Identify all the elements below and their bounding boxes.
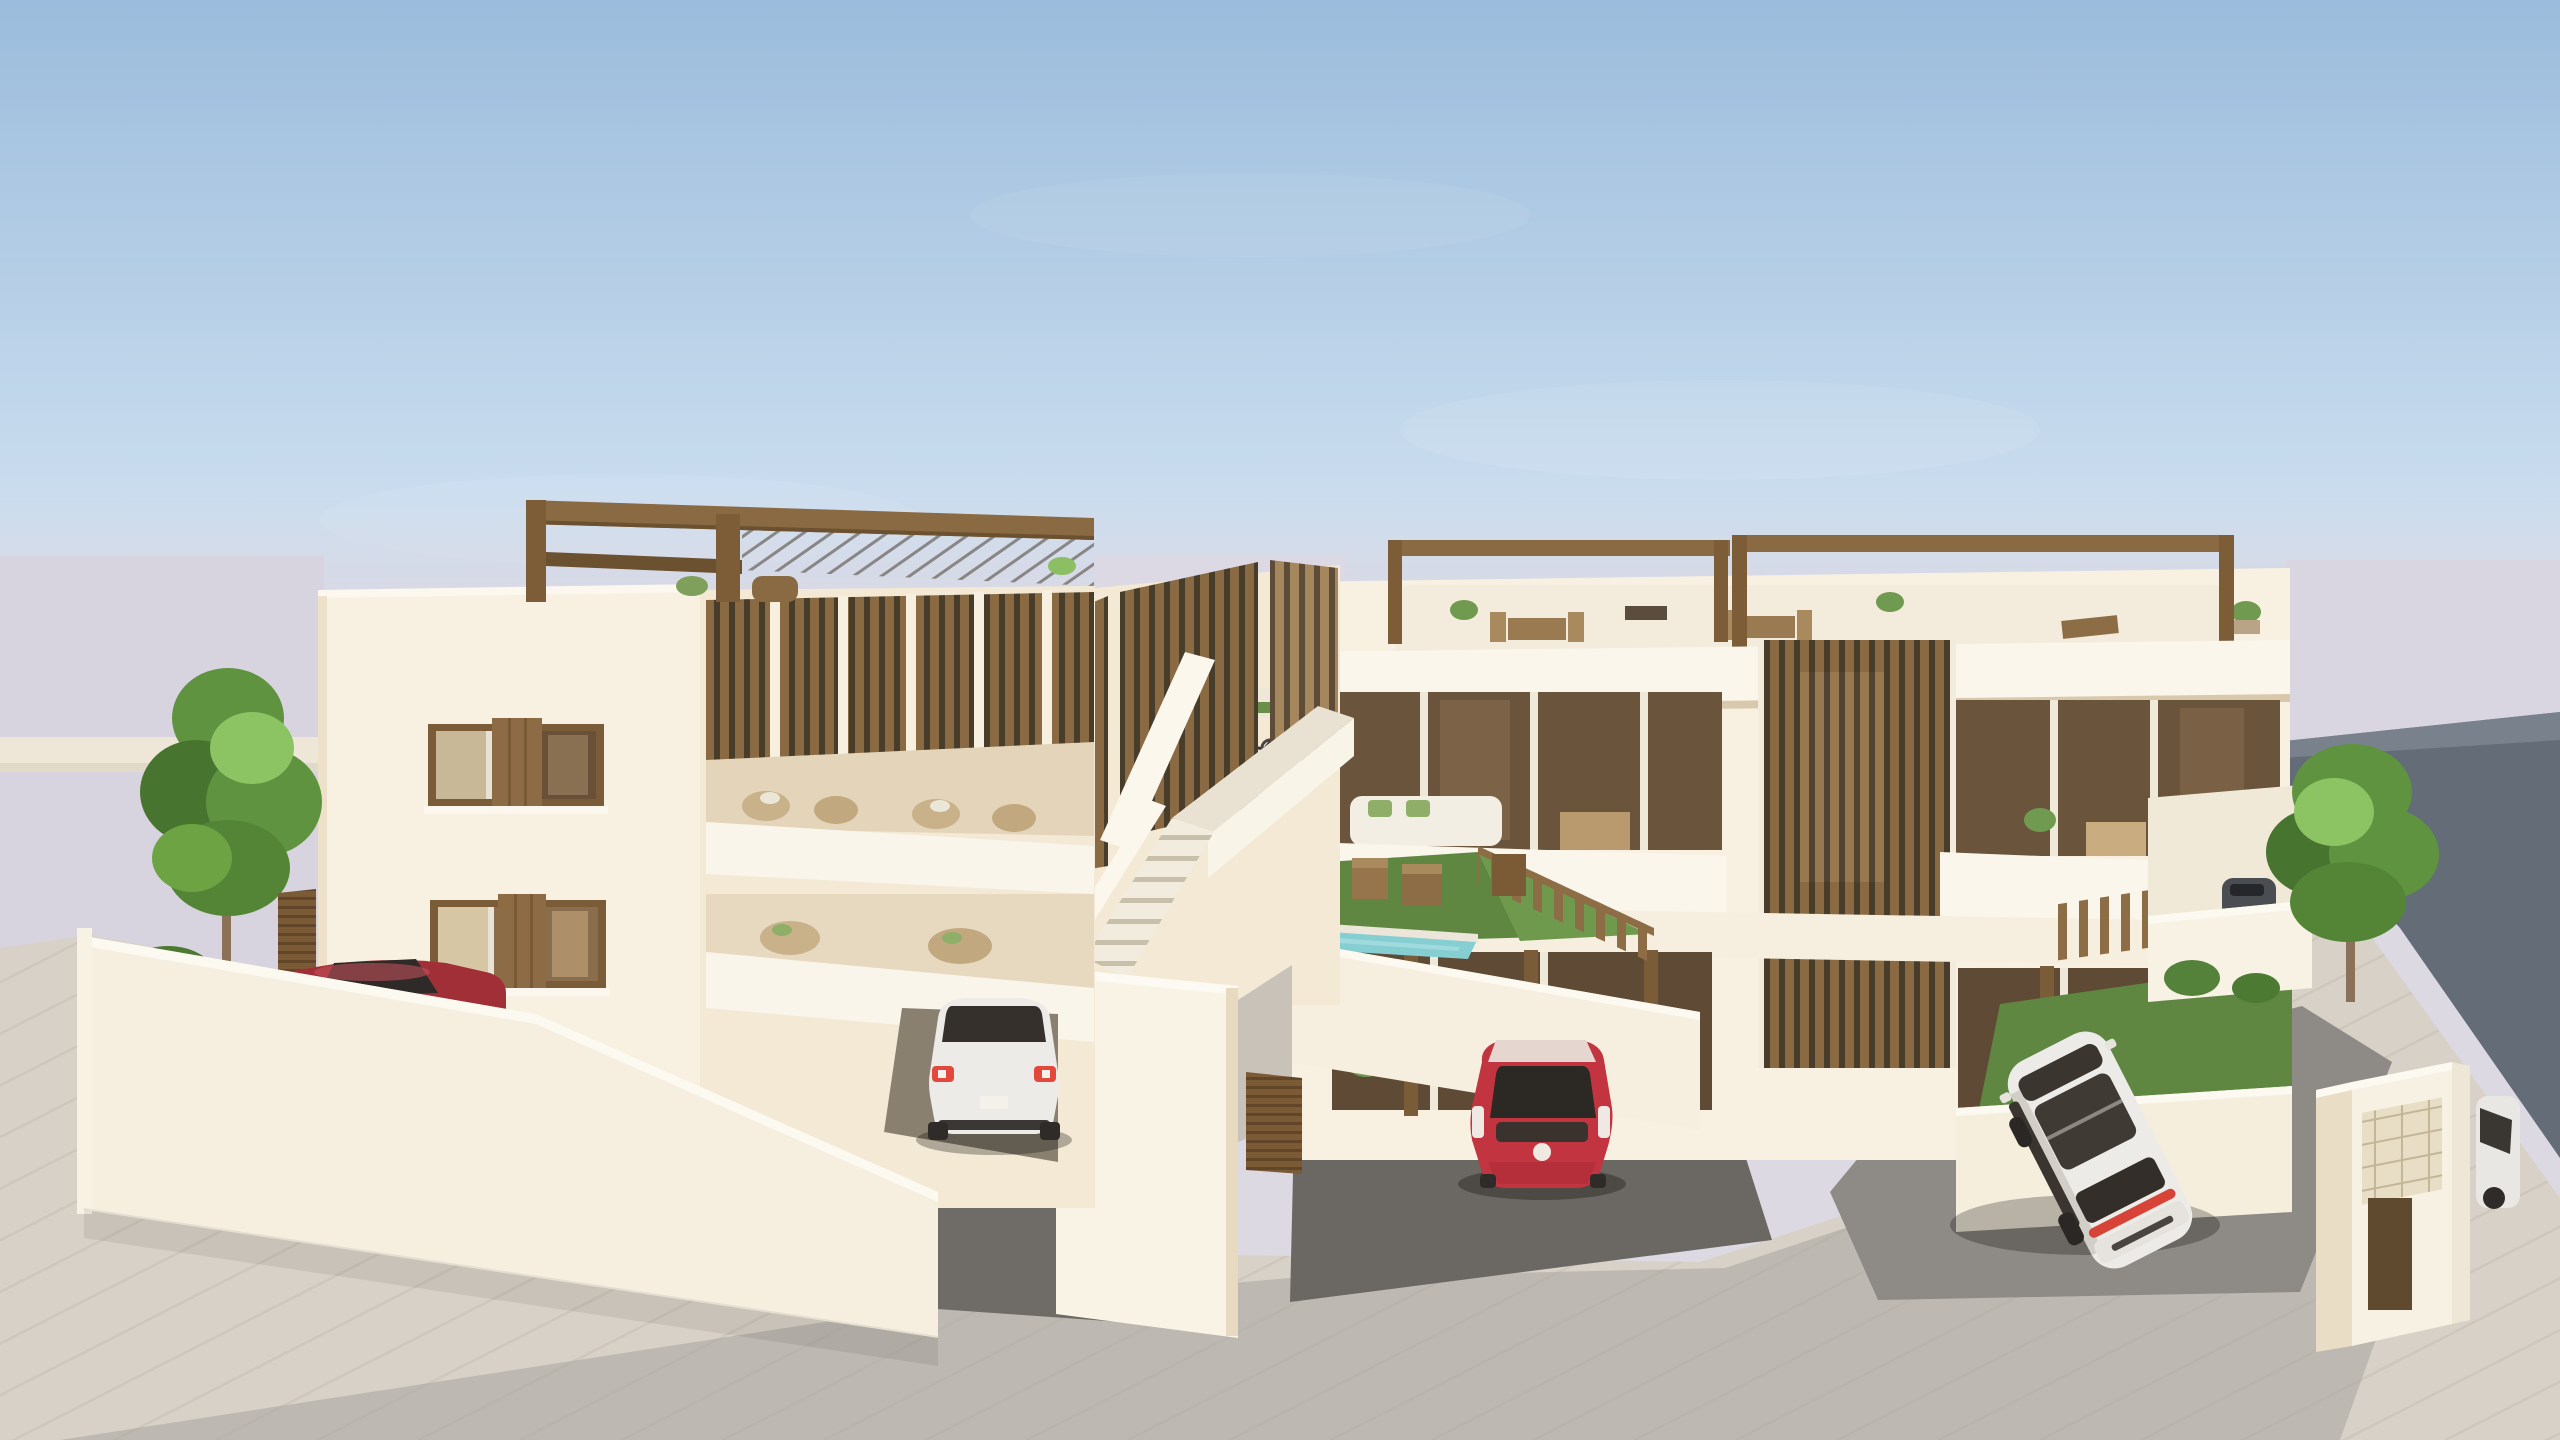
architectural-render [0,0,2560,1440]
flank-mullion [974,592,984,758]
roof-chair [1568,612,1584,642]
roof-palm [1048,557,1076,575]
roof-plant [1450,600,1478,620]
pergola-post [1732,535,1747,650]
window-mullion [1530,692,1538,850]
window-sill [424,806,608,814]
window-mullion [486,731,492,799]
window-pane-light [436,731,488,799]
pergola-post [2219,535,2234,650]
pergola-post [526,500,546,602]
louver-frame [1758,640,1764,1068]
sofa-cushion-green [942,932,962,944]
lounger [1402,872,1442,906]
pergola-post [1388,540,1402,644]
wicker-chair [814,796,858,824]
canopy [210,712,294,784]
shutter-grain [508,718,511,812]
render-viewport [0,0,2560,1440]
balcony-plant [2024,808,2056,832]
glass-reflection [552,911,588,977]
sedan-rear-glass [942,1006,1046,1042]
balcony-table [1560,812,1630,850]
roof-dining-table [1508,618,1566,640]
pergola-post [1714,540,1728,642]
white-car-front [2476,1096,2520,1209]
sedan-bumper-shade [938,1120,1050,1130]
pergola-beam [1388,540,1730,556]
glass-reflection [548,735,588,795]
shutter-grain [530,894,533,994]
roof-planter [2234,620,2260,634]
shrub [2164,960,2220,996]
sofa-cushion [1406,800,1430,817]
hatch-logo [1533,1143,1551,1161]
tree-trunk [2346,938,2355,1002]
hatch-wheel [1480,1174,1496,1188]
pergola-post [716,514,740,602]
cloud [1400,380,2040,480]
sofa-cushion [1368,800,1392,817]
garden-gate [278,889,316,980]
mailbox-door [2368,1198,2412,1310]
shutter-grain [524,718,527,812]
coupe-roof-highlight [314,963,430,981]
hatch-rear-glass [1490,1066,1596,1118]
hatch-taillight [1472,1106,1484,1138]
roof-plant [676,576,708,596]
hatch-bumper [1488,1162,1596,1184]
roof-chair [1490,612,1506,642]
white-sedan [916,998,1072,1155]
window-mullion [2050,700,2058,856]
red-hatchback [1458,1040,1626,1200]
canopy [152,824,232,892]
wood-shutter [492,718,542,812]
roof-vent [752,576,798,602]
wooden-louver-screen-right [1758,640,1956,1068]
cloud [970,173,1530,257]
canopy [2290,862,2406,942]
shrub [2232,973,2280,1003]
wall-end-post [77,928,92,1214]
window-mullion [1640,692,1648,850]
white-car-wheel [2483,1187,2505,1209]
roof-plant [1876,592,1904,612]
flank-mullion [1042,590,1052,748]
fence-gate [1492,854,1526,896]
wicker-chair [992,804,1036,832]
hatch-trunk-band [1496,1122,1588,1142]
hatch-taillight [1598,1106,1610,1138]
pergola-beam [1732,535,2234,552]
balcony-chairs [2086,822,2146,856]
sedan-wheel [928,1122,948,1140]
window-mullion [488,907,494,981]
louver-panel-light [1800,672,1884,882]
mailbox-return [2452,1062,2470,1324]
facade-window-upper [424,718,608,814]
mailbox-unit [2316,1062,2470,1352]
hatch-roof [1488,1040,1596,1062]
wicker-sofa [760,921,820,955]
flank-mullion [906,594,916,770]
cushion [930,800,950,812]
cushion [760,792,780,804]
dark-car-window [2230,884,2264,896]
garage-door [1246,1072,1302,1174]
stair-block-shade [1226,988,1238,1336]
wicker-sofa [928,928,992,964]
lounger [1352,866,1388,899]
roof-plant [2231,601,2261,623]
mailbox-side [2316,1082,2352,1352]
roof-chair [1797,610,1812,640]
sedan-plate [980,1096,1008,1109]
sofa-cushion-green [772,924,792,936]
taillight-inner [1042,1070,1050,1078]
lounger-back [1352,858,1388,868]
shutter-grain [514,894,517,994]
taillight-inner [938,1070,946,1078]
lounger-back [1402,864,1442,874]
wood-shutter [498,894,546,994]
sedan-wheel [1040,1122,1060,1140]
roof-cushions [1625,606,1667,620]
canopy [2294,778,2374,846]
mailbox-panels [2362,1097,2442,1205]
hatch-wheel [1590,1174,1606,1188]
